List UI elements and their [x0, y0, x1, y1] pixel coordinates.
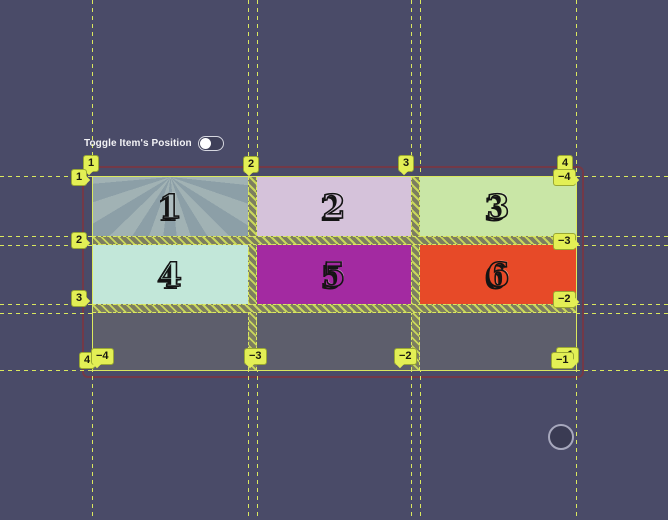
- toggle-item-position-label: Toggle Item's Position: [84, 138, 192, 149]
- column-gap-strip-1: [248, 177, 257, 370]
- grid-item-1: 1: [93, 177, 248, 236]
- column-line-badge-3: 3: [398, 155, 414, 172]
- column-line-badge-neg4: −4: [91, 348, 114, 365]
- grid-item-6-number: 6: [487, 258, 510, 291]
- column-line-badge-2: 2: [243, 156, 259, 173]
- grid-item-5: 5: [257, 245, 411, 304]
- grid-item-4: 4: [93, 245, 248, 304]
- row-line-badge-3: 3: [71, 290, 87, 307]
- grid-item-3-number: 3: [487, 190, 510, 223]
- row-line-badge-neg3: −3: [553, 233, 576, 250]
- row-line-badge-neg2: −2: [553, 291, 576, 308]
- dot-button[interactable]: [548, 424, 574, 450]
- column-gap-strip-2: [411, 177, 420, 370]
- column-line-badge-neg2: −2: [394, 348, 417, 365]
- toggle-item-position-row: Toggle Item's Position: [84, 136, 224, 151]
- grid-item-1-number: 1: [159, 190, 182, 223]
- grid-item-3: 3: [420, 177, 576, 236]
- toggle-knob: [200, 138, 211, 149]
- grid-item-2-number: 2: [323, 190, 346, 223]
- grid-container: 1 2 3 4 5 6: [92, 176, 577, 371]
- grid-item-4-number: 4: [159, 258, 182, 291]
- row-gap-strip-2: [93, 304, 576, 313]
- row-gap-strip-1: [93, 236, 576, 245]
- toggle-item-position-switch[interactable]: [198, 136, 224, 151]
- row-line-badge-neg4: −4: [553, 169, 576, 186]
- column-line-badge-neg3: −3: [244, 348, 267, 365]
- grid-item-5-number: 5: [323, 258, 346, 291]
- row-line-badge-2: 2: [71, 232, 87, 249]
- grid-item-2: 2: [257, 177, 411, 236]
- row-line-badge-neg1: −1: [551, 352, 574, 369]
- row-line-badge-1: 1: [71, 169, 87, 186]
